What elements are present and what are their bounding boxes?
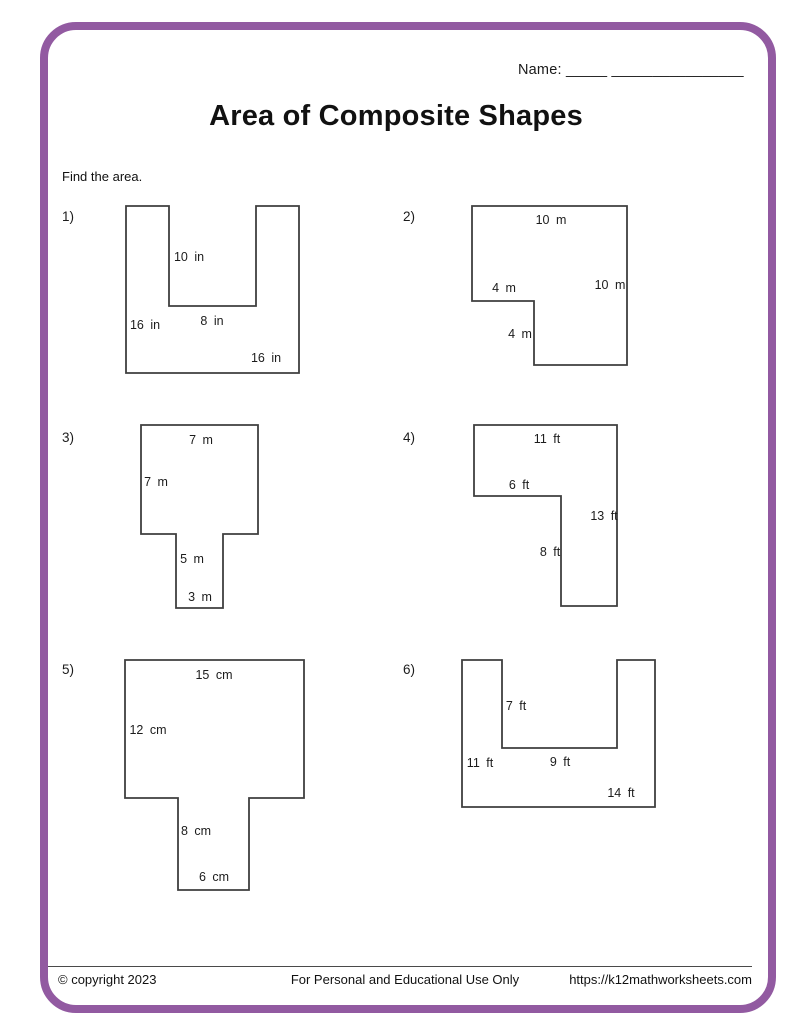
dimension-label: 8 ft	[540, 545, 561, 559]
problem-1-number: 1)	[62, 209, 74, 224]
dimension-label: 15 cm	[195, 668, 232, 682]
problem-5-shape-outline	[125, 660, 304, 890]
dimension-label: 10 in	[174, 250, 204, 264]
dimension-label: 7 m	[189, 433, 213, 447]
problem-5-number: 5)	[62, 662, 74, 677]
dimension-label: 4 m	[492, 281, 516, 295]
problem-6-shape-outline	[462, 660, 655, 807]
problem-2-number: 2)	[403, 209, 415, 224]
shapes-canvas: 1) 10 in 8 in 16 in 16 in 2) 10 m 4 m 10…	[0, 0, 800, 1035]
dimension-label: 12 cm	[129, 723, 166, 737]
dimension-label: 10 m	[536, 213, 567, 227]
dimension-label: 11 ft	[534, 432, 561, 446]
dimension-label: 6 cm	[199, 870, 229, 884]
problem-3: 3) 7 m 7 m 5 m 3 m	[62, 425, 258, 608]
problem-2: 2) 10 m 4 m 10 m 4 m	[403, 206, 627, 365]
dimension-label: 8 cm	[181, 824, 211, 838]
dimension-label: 4 m	[508, 327, 532, 341]
dimension-label: 8 in	[200, 314, 223, 328]
problem-6: 6) 7 ft 11 ft 9 ft 14 ft	[403, 660, 655, 807]
problem-3-shape-outline	[141, 425, 258, 608]
problem-4-number: 4)	[403, 430, 415, 445]
dimension-label: 11 ft	[467, 756, 494, 770]
dimension-label: 7 ft	[506, 699, 527, 713]
worksheet-page: Name: _____ ________________ Area of Com…	[0, 0, 800, 1035]
problem-6-number: 6)	[403, 662, 415, 677]
problem-5: 5) 15 cm 12 cm 8 cm 6 cm	[62, 660, 304, 890]
dimension-label: 16 in	[251, 351, 281, 365]
problem-4: 4) 11 ft 6 ft 13 ft 8 ft	[403, 425, 618, 606]
problem-1: 1) 10 in 8 in 16 in 16 in	[62, 206, 299, 373]
problem-1-shape-outline	[126, 206, 299, 373]
problem-3-number: 3)	[62, 430, 74, 445]
dimension-label: 7 m	[144, 475, 168, 489]
footer-url: https://k12mathworksheets.com	[569, 972, 752, 987]
dimension-label: 5 m	[180, 552, 204, 566]
dimension-label: 6 ft	[509, 478, 530, 492]
dimension-label: 14 ft	[607, 786, 635, 800]
dimension-label: 3 m	[188, 590, 212, 604]
dimension-label: 10 m	[595, 278, 626, 292]
footer-divider	[48, 966, 752, 967]
dimension-label: 9 ft	[550, 755, 571, 769]
dimension-label: 13 ft	[590, 509, 618, 523]
dimension-label: 16 in	[130, 318, 160, 332]
